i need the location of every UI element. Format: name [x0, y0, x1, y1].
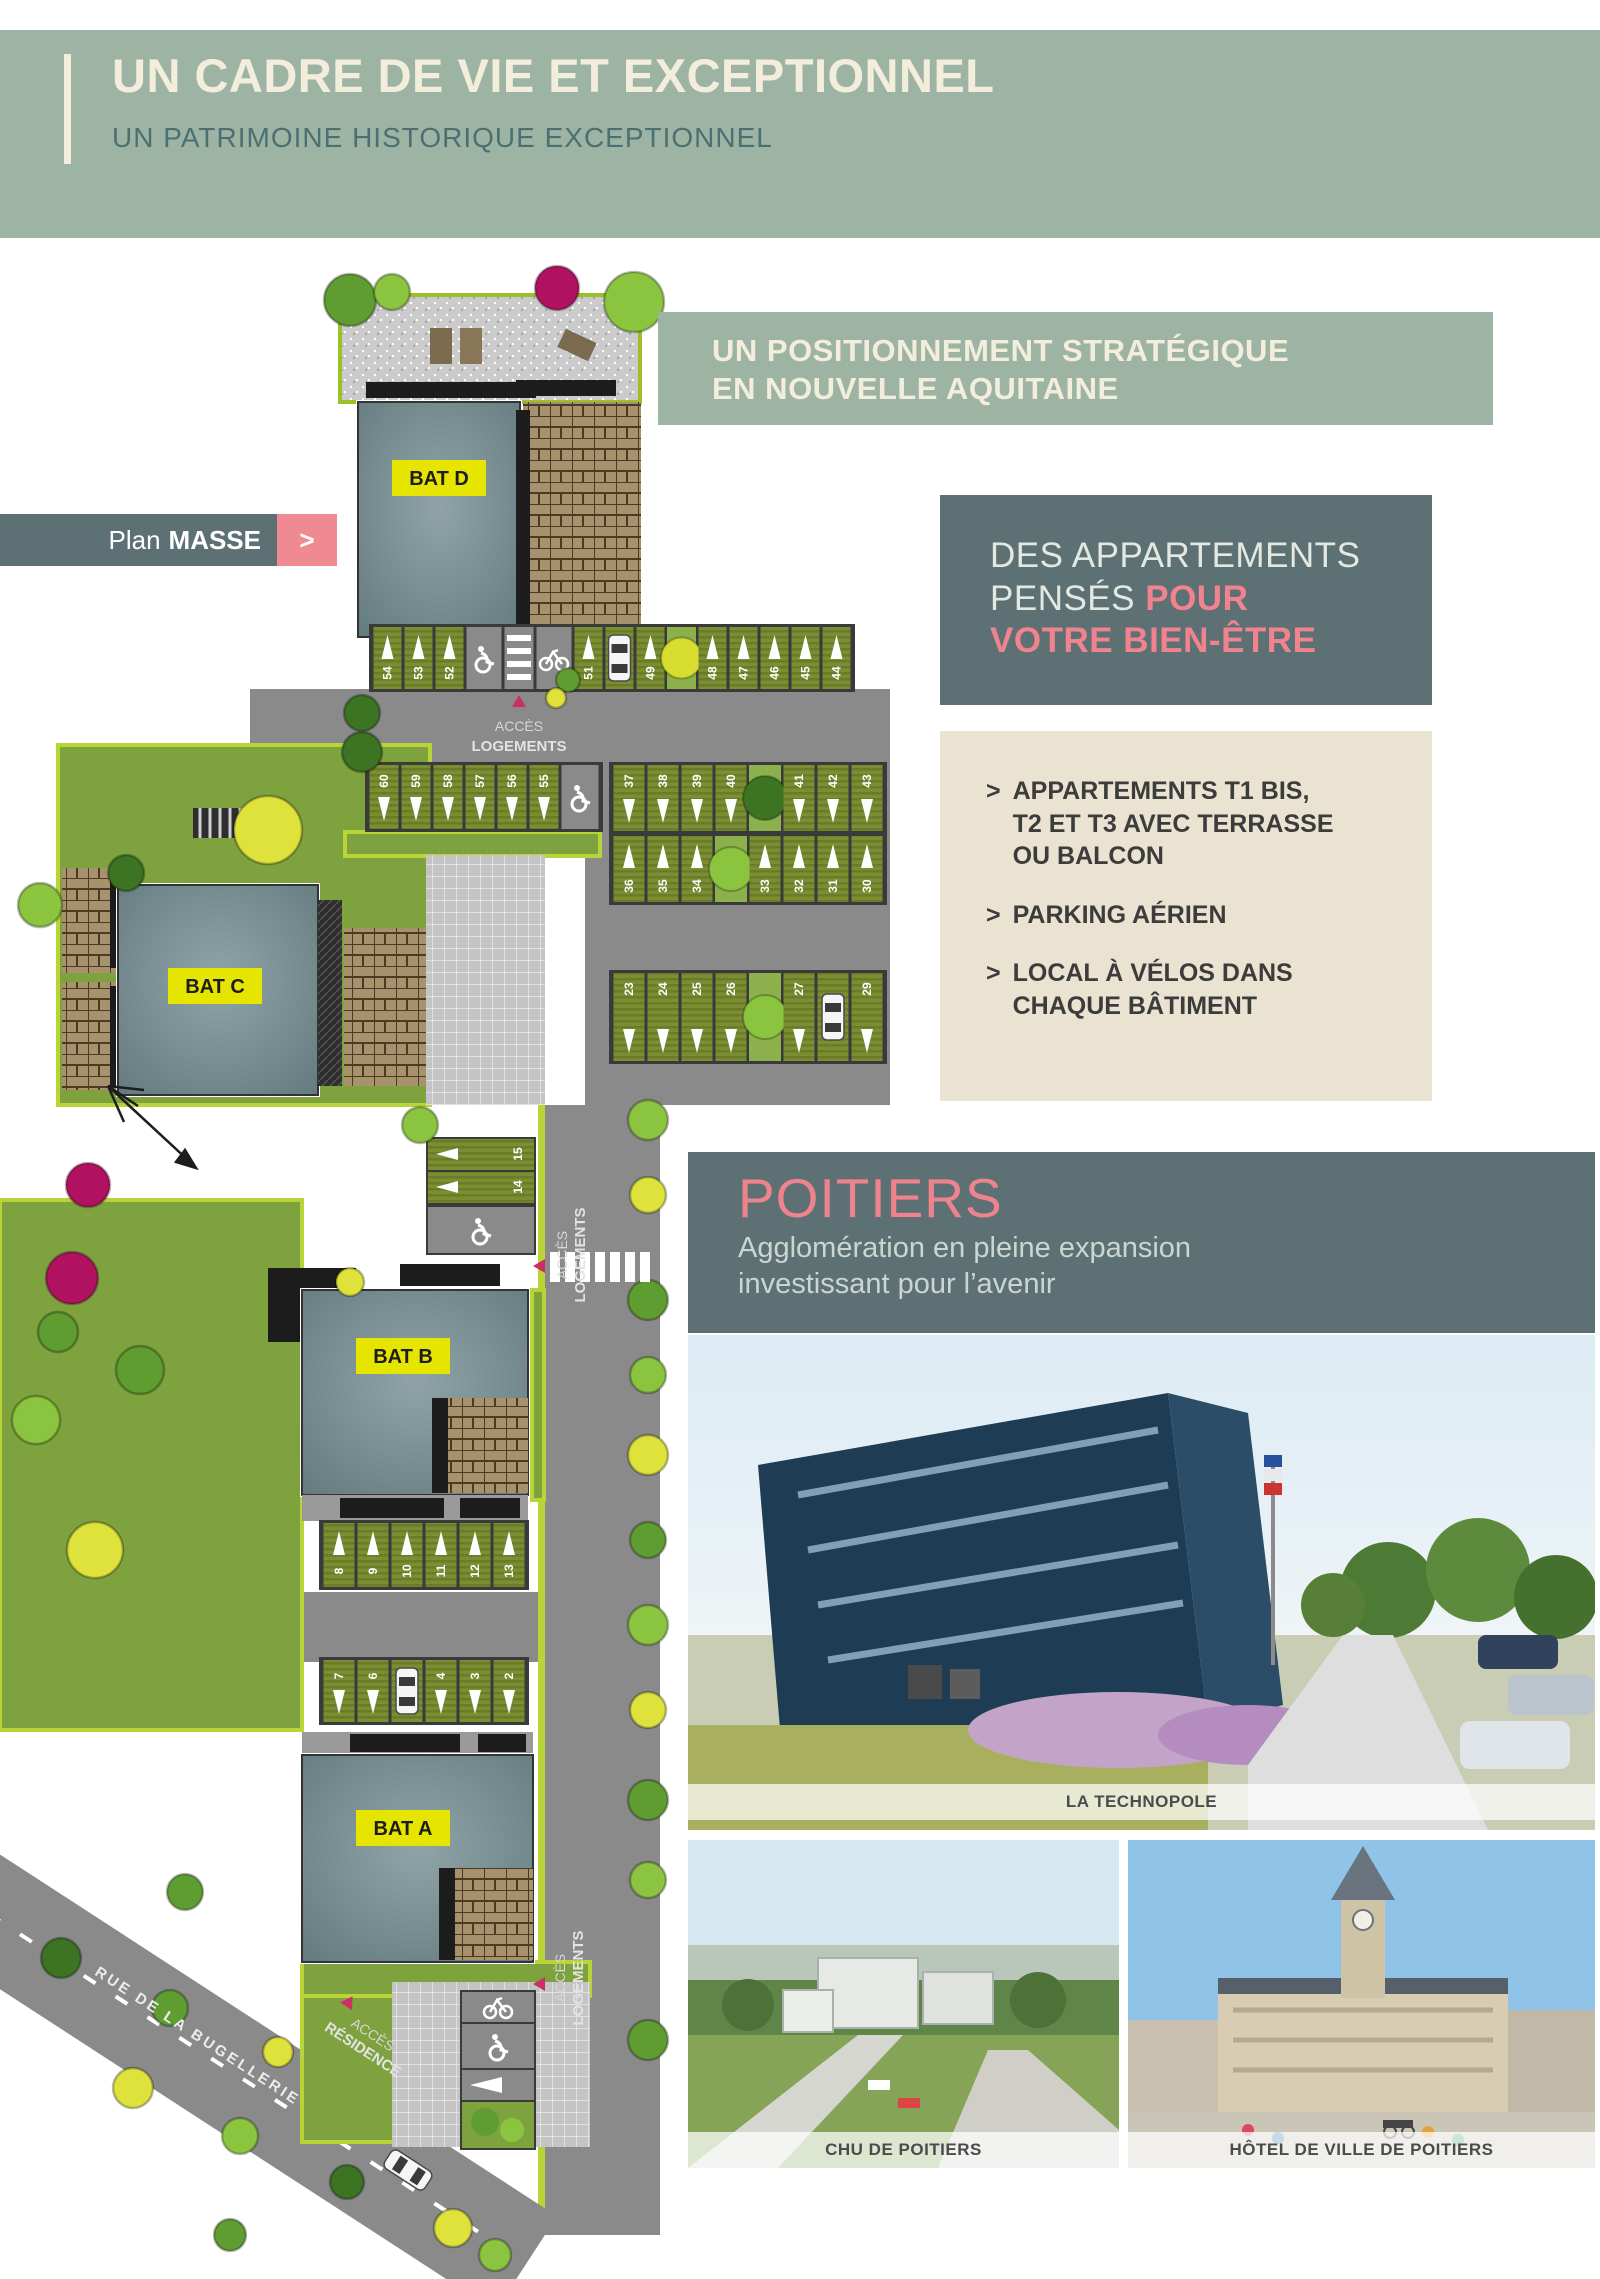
acces-logements-top-2: LOGEMENTS — [471, 738, 566, 755]
tree-icon — [604, 272, 664, 332]
poitiers-box: POITIERS Agglomération en pleine expansi… — [688, 1152, 1595, 1333]
svg-text:25: 25 — [690, 982, 704, 996]
tree-icon — [628, 2020, 668, 2060]
acces-logements-mid-2: LOGEMENTS — [572, 1207, 589, 1302]
page-title: UN CADRE DE VIE ET EXCEPTIONNEL — [112, 48, 995, 103]
strategic-line2: EN NOUVELLE AQUITAINE — [712, 370, 1493, 408]
poitiers-sub1: Agglomération en pleine expansion — [738, 1230, 1595, 1266]
bat-d-block: BAT D — [340, 295, 641, 639]
svg-text:38: 38 — [656, 774, 670, 788]
photo-hotel-de-ville: HÔTEL DE VILLE DE POITIERS — [1128, 1840, 1595, 2168]
svg-text:55: 55 — [537, 774, 551, 788]
svg-text:53: 53 — [412, 666, 426, 680]
svg-text:58: 58 — [441, 774, 455, 788]
tree-icon — [38, 1312, 78, 1352]
svg-text:9: 9 — [366, 1567, 380, 1574]
bat-a-label: BAT A — [374, 1818, 433, 1840]
svg-text:24: 24 — [656, 982, 670, 996]
svg-text:43: 43 — [860, 774, 874, 788]
poitiers-sub2: investissant pour l’avenir — [738, 1266, 1595, 1302]
tree-icon — [66, 1163, 110, 1207]
feature-bullet: > — [986, 899, 1001, 932]
tree-icon — [324, 274, 376, 326]
svg-text:46: 46 — [768, 666, 782, 680]
page-subtitle: UN PATRIMOINE HISTORIQUE EXCEPTIONNEL — [112, 122, 773, 154]
parking-row: 76432 — [319, 1657, 529, 1725]
caption-technopole: LA TECHNOPOLE — [688, 1784, 1595, 1820]
parking-row: 8910111213 — [319, 1520, 529, 1590]
svg-text:36: 36 — [622, 879, 636, 893]
svg-text:33: 33 — [758, 879, 772, 893]
tree-icon — [630, 1692, 666, 1728]
brochure-page: UN CADRE DE VIE ET EXCEPTIONNEL UN PATRI… — [0, 0, 1600, 2279]
tree-icon — [630, 1177, 666, 1213]
bat-b-block: BAT B — [268, 1264, 530, 1521]
tree-icon — [535, 266, 579, 310]
parking-row: 37383940414243 — [609, 762, 887, 834]
tree-icon — [342, 732, 382, 772]
parking-row: 54535251494847464544 — [369, 624, 855, 692]
bat-c-label: BAT C — [185, 976, 245, 998]
svg-text:27: 27 — [792, 982, 806, 996]
feature-item: >APPARTEMENTS T1 BIS,T2 ET T3 AVEC TERRA… — [986, 775, 1398, 873]
tree-icon — [113, 2068, 153, 2108]
tree-icon — [344, 695, 380, 731]
tree-icon — [630, 1357, 666, 1393]
svg-text:12: 12 — [468, 1564, 482, 1578]
svg-text:48: 48 — [706, 666, 720, 680]
chu-scene — [688, 1840, 1119, 2168]
tree-icon — [628, 1605, 668, 1645]
svg-text:3: 3 — [468, 1672, 482, 1679]
svg-text:31: 31 — [826, 879, 840, 893]
tree-icon — [628, 1280, 668, 1320]
svg-text:2: 2 — [502, 1672, 516, 1679]
tree-icon — [479, 2239, 511, 2271]
svg-text:14: 14 — [511, 1180, 525, 1194]
svg-text:8: 8 — [332, 1567, 346, 1574]
header-band: UN CADRE DE VIE ET EXCEPTIONNEL UN PATRI… — [0, 30, 1600, 238]
svg-text:44: 44 — [830, 666, 844, 680]
svg-text:41: 41 — [792, 774, 806, 788]
strategic-line1: UN POSITIONNEMENT STRATÉGIQUE — [712, 332, 1493, 370]
photo-technopole: LA TECHNOPOLE — [688, 1335, 1595, 1830]
wellbeing-line1: DES APPARTEMENTS — [990, 535, 1432, 578]
wellbeing-line3: VOTRE BIEN-ÊTRE — [990, 620, 1432, 663]
tree-icon — [12, 1396, 60, 1444]
tree-icon — [374, 274, 410, 310]
tree-icon — [214, 2219, 246, 2251]
acces-logements-mid-1: ACCÈS — [554, 1231, 570, 1279]
feature-bullet: > — [986, 957, 1001, 1022]
residence-entry-spots — [460, 1990, 536, 2150]
tree-icon — [263, 2037, 293, 2067]
tree-icon — [108, 855, 144, 891]
svg-text:56: 56 — [505, 774, 519, 788]
poitiers-title: POITIERS — [738, 1166, 1595, 1230]
svg-text:37: 37 — [622, 774, 636, 788]
svg-text:51: 51 — [582, 666, 596, 680]
tree-icon — [628, 1780, 668, 1820]
caption-hotel: HÔTEL DE VILLE DE POITIERS — [1128, 2132, 1595, 2168]
svg-text:29: 29 — [860, 982, 874, 996]
svg-text:39: 39 — [690, 774, 704, 788]
svg-text:59: 59 — [409, 774, 423, 788]
tree-icon — [630, 1862, 666, 1898]
tree-icon — [67, 1522, 123, 1578]
photo-chu: CHU DE POITIERS — [688, 1840, 1119, 2168]
svg-text:23: 23 — [622, 982, 636, 996]
svg-text:52: 52 — [443, 666, 457, 680]
parking-row: 605958575655 — [365, 762, 603, 832]
svg-text:40: 40 — [724, 774, 738, 788]
tree-icon — [234, 796, 302, 864]
tree-icon — [336, 1268, 364, 1296]
svg-text:45: 45 — [799, 666, 813, 680]
svg-text:7: 7 — [332, 1672, 346, 1679]
tree-icon — [18, 883, 62, 927]
wellbeing-line2: PENSÉS POUR — [990, 578, 1432, 621]
header-accent-bar — [64, 54, 71, 164]
feature-item: >PARKING AÉRIEN — [986, 899, 1398, 932]
svg-text:34: 34 — [690, 879, 704, 893]
tree-icon — [628, 1100, 668, 1140]
wellbeing-box: DES APPARTEMENTS PENSÉS POUR VOTRE BIEN-… — [940, 495, 1432, 705]
tree-icon — [222, 2118, 258, 2154]
wellbeing-line2-accent: POUR — [1145, 579, 1248, 618]
technopole-scene — [688, 1335, 1595, 1830]
svg-text:15: 15 — [511, 1147, 525, 1161]
feature-bullet: > — [986, 775, 1001, 873]
svg-text:4: 4 — [434, 1672, 448, 1679]
tree-icon — [330, 2165, 364, 2199]
hotel-scene — [1128, 1840, 1595, 2168]
tree-icon — [167, 1874, 203, 1910]
tree-icon — [630, 1522, 666, 1558]
tree-icon — [628, 1435, 668, 1475]
tree-icon — [402, 1107, 438, 1143]
strategic-banner: UN POSITIONNEMENT STRATÉGIQUE EN NOUVELL… — [658, 312, 1493, 425]
bat-d-label: BAT D — [409, 468, 469, 490]
acces-logements-bot-1: ACCÈS — [552, 1954, 568, 2002]
parking-row: 232425262729 — [609, 970, 887, 1064]
tree-icon — [41, 1938, 81, 1978]
features-box: >APPARTEMENTS T1 BIS,T2 ET T3 AVEC TERRA… — [940, 731, 1432, 1101]
tree-icon — [546, 688, 566, 708]
acces-logements-top-1: ACCÈS — [495, 718, 543, 734]
svg-text:57: 57 — [473, 774, 487, 788]
svg-text:26: 26 — [724, 982, 738, 996]
tree-icon — [46, 1252, 98, 1304]
svg-text:11: 11 — [434, 1564, 448, 1577]
bat-a-block: BAT A — [300, 1732, 535, 1964]
svg-text:54: 54 — [381, 666, 395, 680]
svg-text:13: 13 — [502, 1564, 516, 1578]
caption-chu: CHU DE POITIERS — [688, 2132, 1119, 2168]
svg-text:60: 60 — [377, 774, 391, 788]
svg-text:32: 32 — [792, 879, 806, 893]
parking-row: 36353433323130 — [609, 833, 887, 905]
side-parking: 1514 — [426, 1137, 536, 1255]
feature-item: >LOCAL À VÉLOS DANSCHAQUE BÂTIMENT — [986, 957, 1398, 1022]
wellbeing-line2-normal: PENSÉS — [990, 579, 1145, 618]
svg-text:10: 10 — [400, 1564, 414, 1578]
svg-text:6: 6 — [366, 1672, 380, 1679]
svg-text:49: 49 — [644, 666, 658, 680]
tree-icon — [116, 1346, 164, 1394]
tree-icon — [434, 2209, 472, 2247]
acces-logements-bot-2: LOGEMENTS — [570, 1930, 587, 2025]
bat-b-label: BAT B — [373, 1346, 433, 1368]
svg-text:35: 35 — [656, 879, 670, 893]
svg-text:42: 42 — [826, 774, 840, 788]
svg-text:30: 30 — [860, 879, 874, 893]
svg-text:47: 47 — [737, 666, 751, 680]
